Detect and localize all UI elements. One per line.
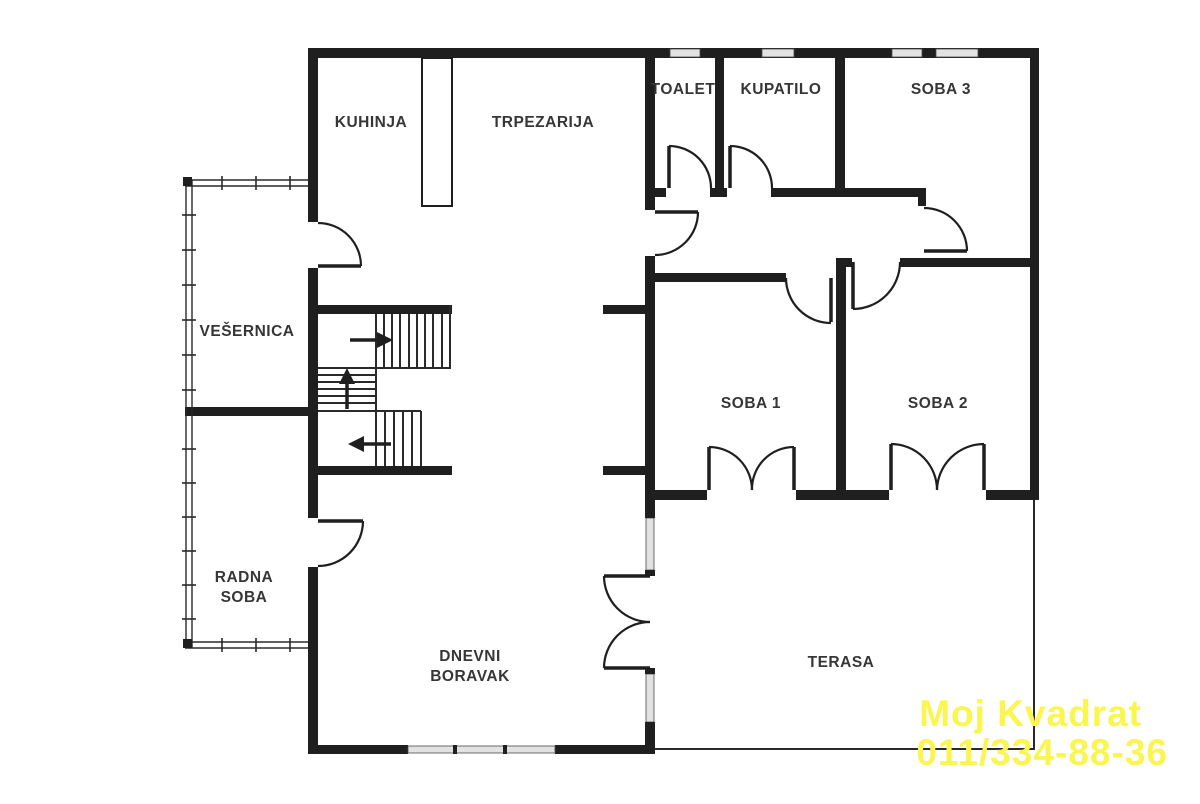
room-label-radna-line1: RADNA (215, 569, 273, 586)
room-label-kupatilo: KUPATILO (741, 81, 822, 98)
staircase (318, 305, 451, 466)
window-toalet (670, 49, 700, 57)
door-trpezarija-hodnik (655, 212, 698, 255)
door-vesernica-kuhinja (318, 223, 361, 266)
window-terasa-lower (646, 674, 654, 722)
room-label-dnevni-line1: DNEVNI (439, 648, 501, 665)
room-label-radna-line2: SOBA (221, 589, 268, 606)
room-label-dnevni-line2: BORAVAK (430, 668, 510, 685)
room-label-vesernica: VEŠERNICA (200, 322, 295, 340)
french-door-soba2-terasa (891, 444, 984, 490)
room-label-trpezarija: TRPEZARIJA (492, 114, 594, 131)
watermark: Moj Kvadrat 011/334-88-36 (916, 693, 1168, 773)
watermark-line2: 011/334-88-36 (916, 732, 1168, 773)
stair-treads-lower (376, 411, 421, 466)
window-kupatilo (762, 49, 794, 57)
watermark-line1: Moj Kvadrat (919, 693, 1142, 734)
window-soba3-left (892, 49, 922, 57)
floorplan-drawing: KUHINJA TRPEZARIJA TOALET KUPATILO SOBA … (0, 0, 1200, 804)
window-soba3-right (936, 49, 978, 57)
door-soba1 (786, 278, 831, 323)
room-label-kuhinja: KUHINJA (335, 114, 407, 131)
room-label-terasa: TERASA (808, 654, 875, 671)
window-dnevni-boravak (408, 746, 555, 753)
french-door-dnevni-terasa (604, 576, 650, 668)
room-label-toalet: TOALET (651, 81, 716, 98)
room-label-soba2: SOBA 2 (908, 395, 968, 412)
door-kupatilo (730, 146, 772, 188)
door-toalet (669, 146, 711, 188)
window-terasa-upper (646, 518, 654, 570)
kitchen-partition-wall (422, 58, 452, 206)
door-soba3 (924, 208, 967, 251)
room-label-soba1: SOBA 1 (721, 395, 781, 412)
door-soba2 (853, 262, 900, 309)
stair-arrow-right-icon (350, 332, 393, 348)
door-radna-dnevni (318, 521, 363, 566)
french-door-soba1-terasa (709, 447, 794, 490)
floorplan-canvas: KUHINJA TRPEZARIJA TOALET KUPATILO SOBA … (0, 0, 1200, 804)
room-label-soba3: SOBA 3 (911, 81, 971, 98)
